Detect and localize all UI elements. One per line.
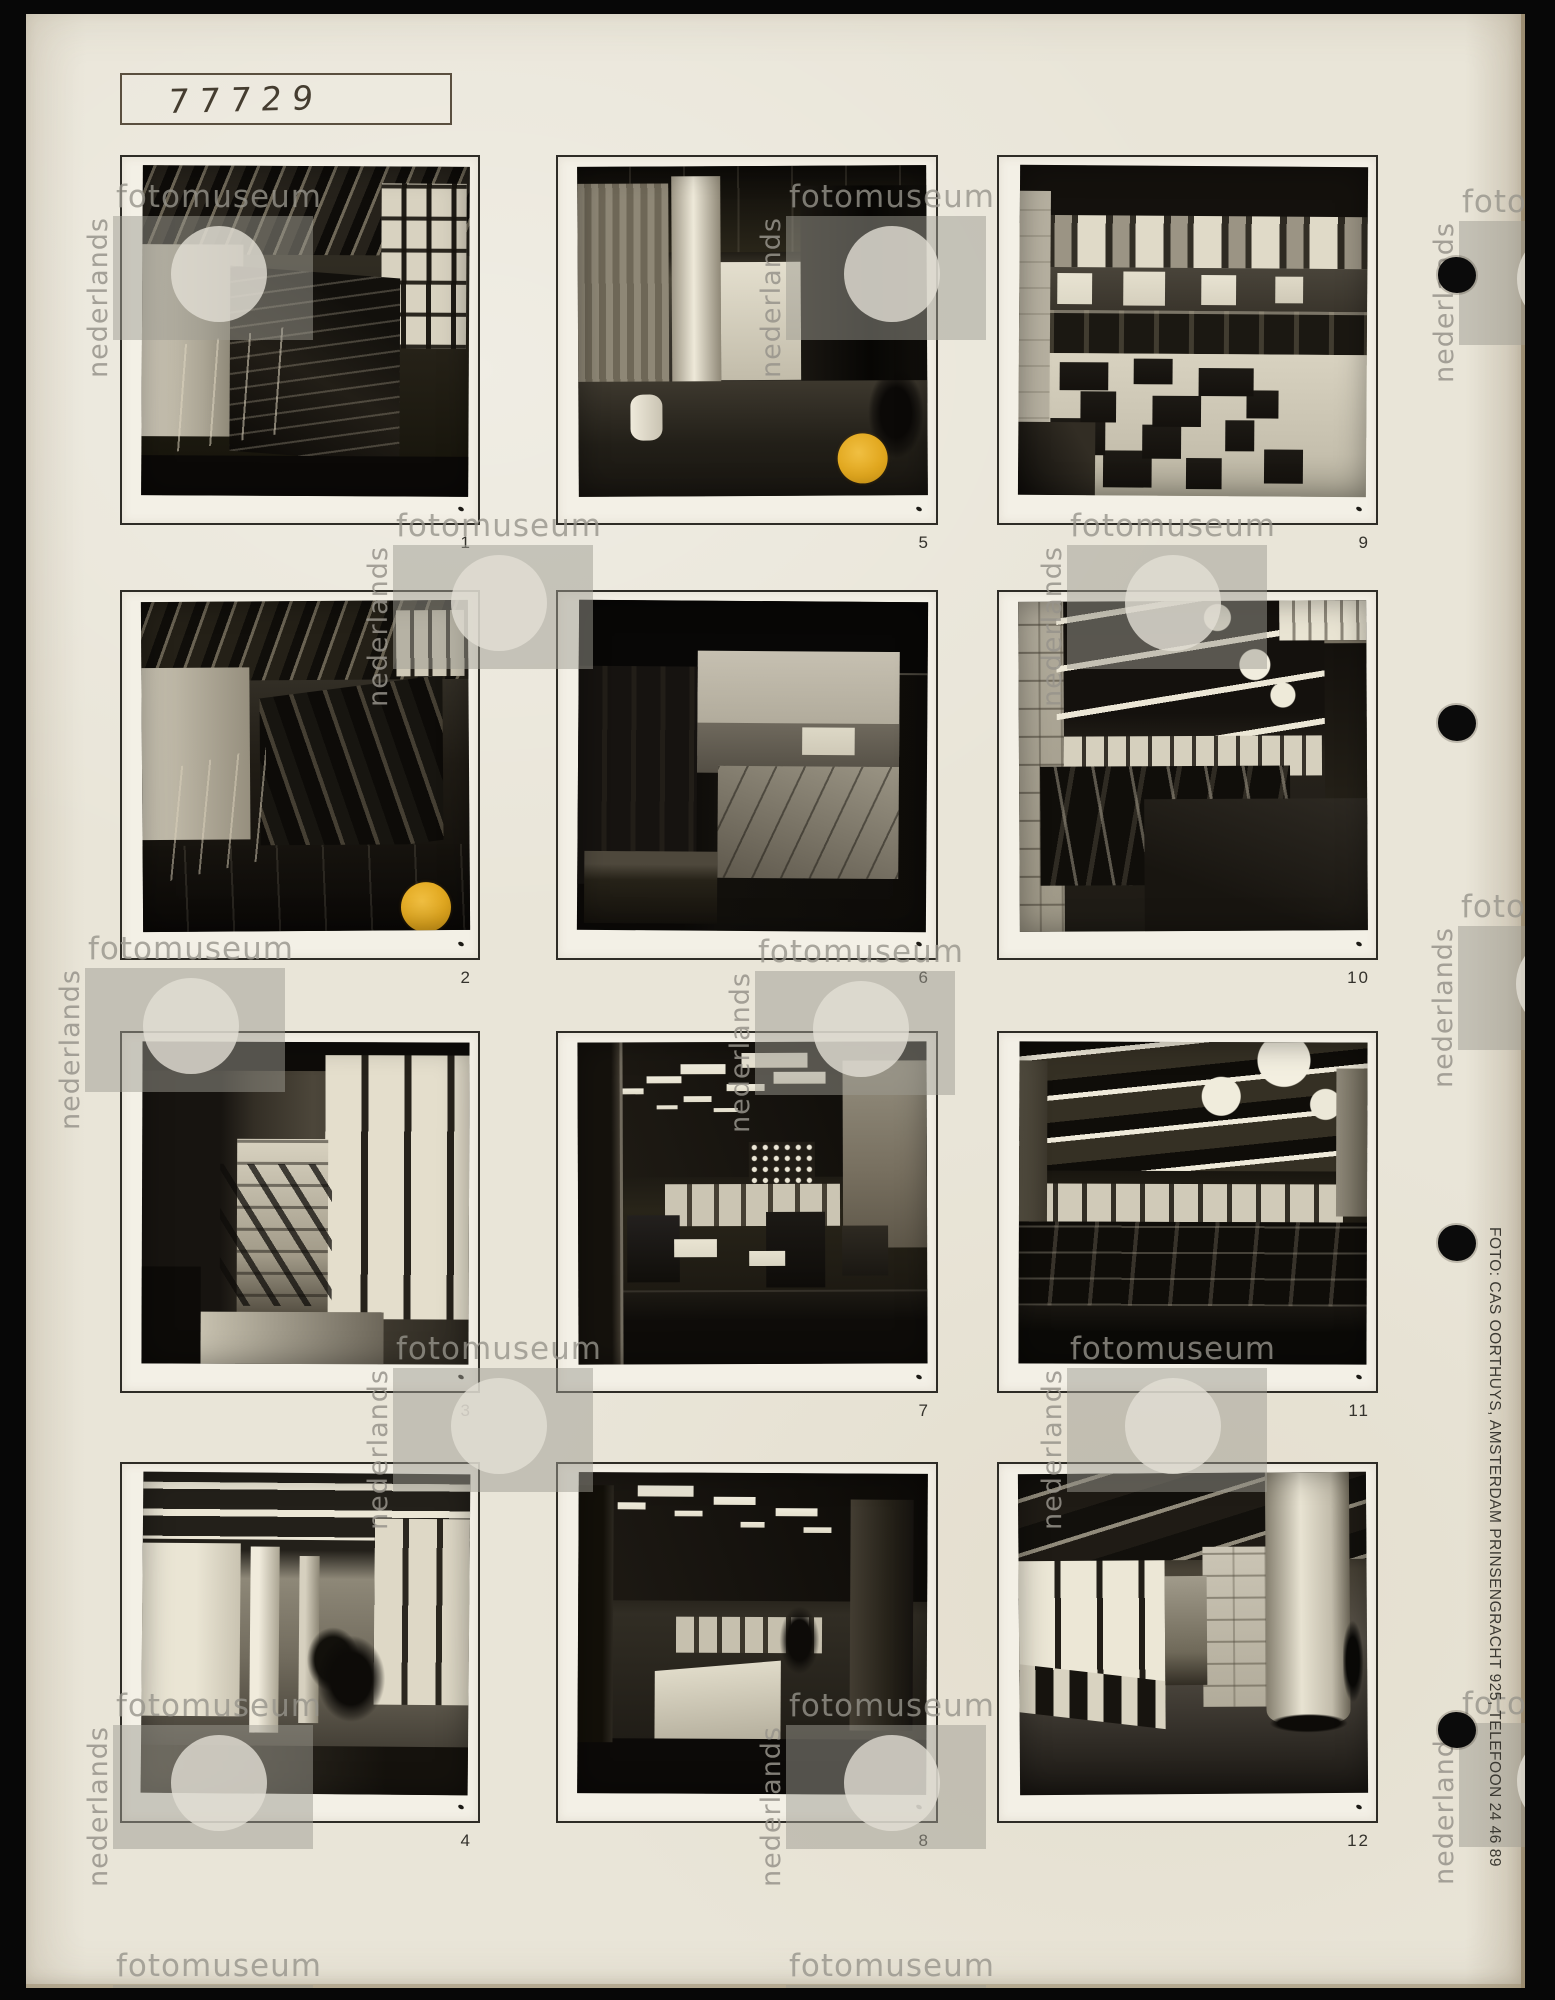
punch-hole: [1438, 257, 1476, 293]
punch-hole: [1438, 705, 1476, 741]
punch-hole: [1438, 1225, 1476, 1261]
contact-sheet-scan: 77729 123456789101112 nederlandsfotomuse…: [0, 0, 1555, 2000]
punch-holes: [0, 0, 1555, 2000]
photographer-credit: FOTO: CAS OORTHUYS, AMSTERDAM PRINSENGRA…: [1485, 1227, 1503, 1819]
punch-hole: [1438, 1712, 1476, 1748]
